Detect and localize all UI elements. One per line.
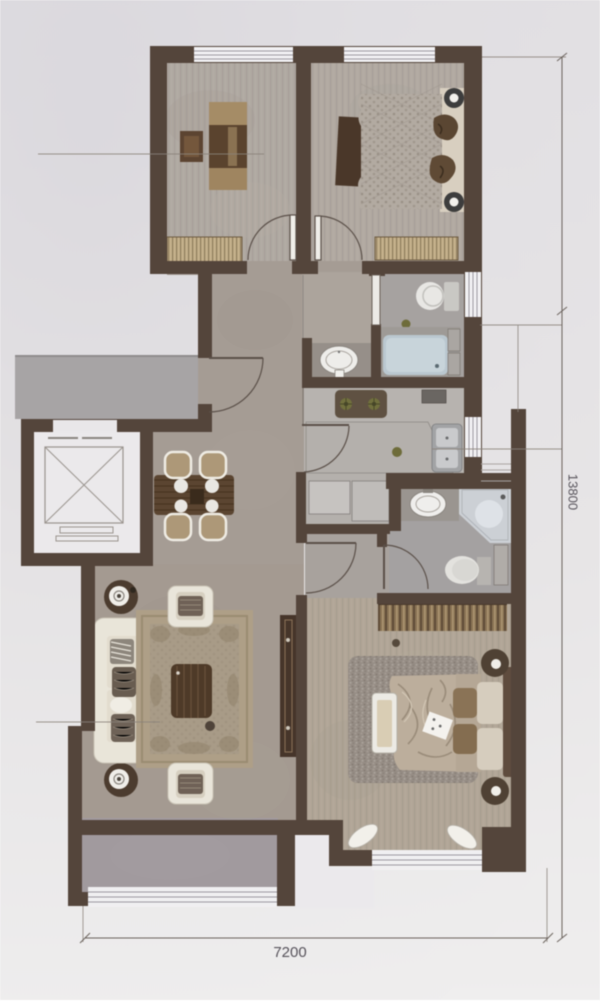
svg-text:7200: 7200	[273, 944, 306, 961]
svg-text:13800: 13800	[566, 474, 581, 510]
